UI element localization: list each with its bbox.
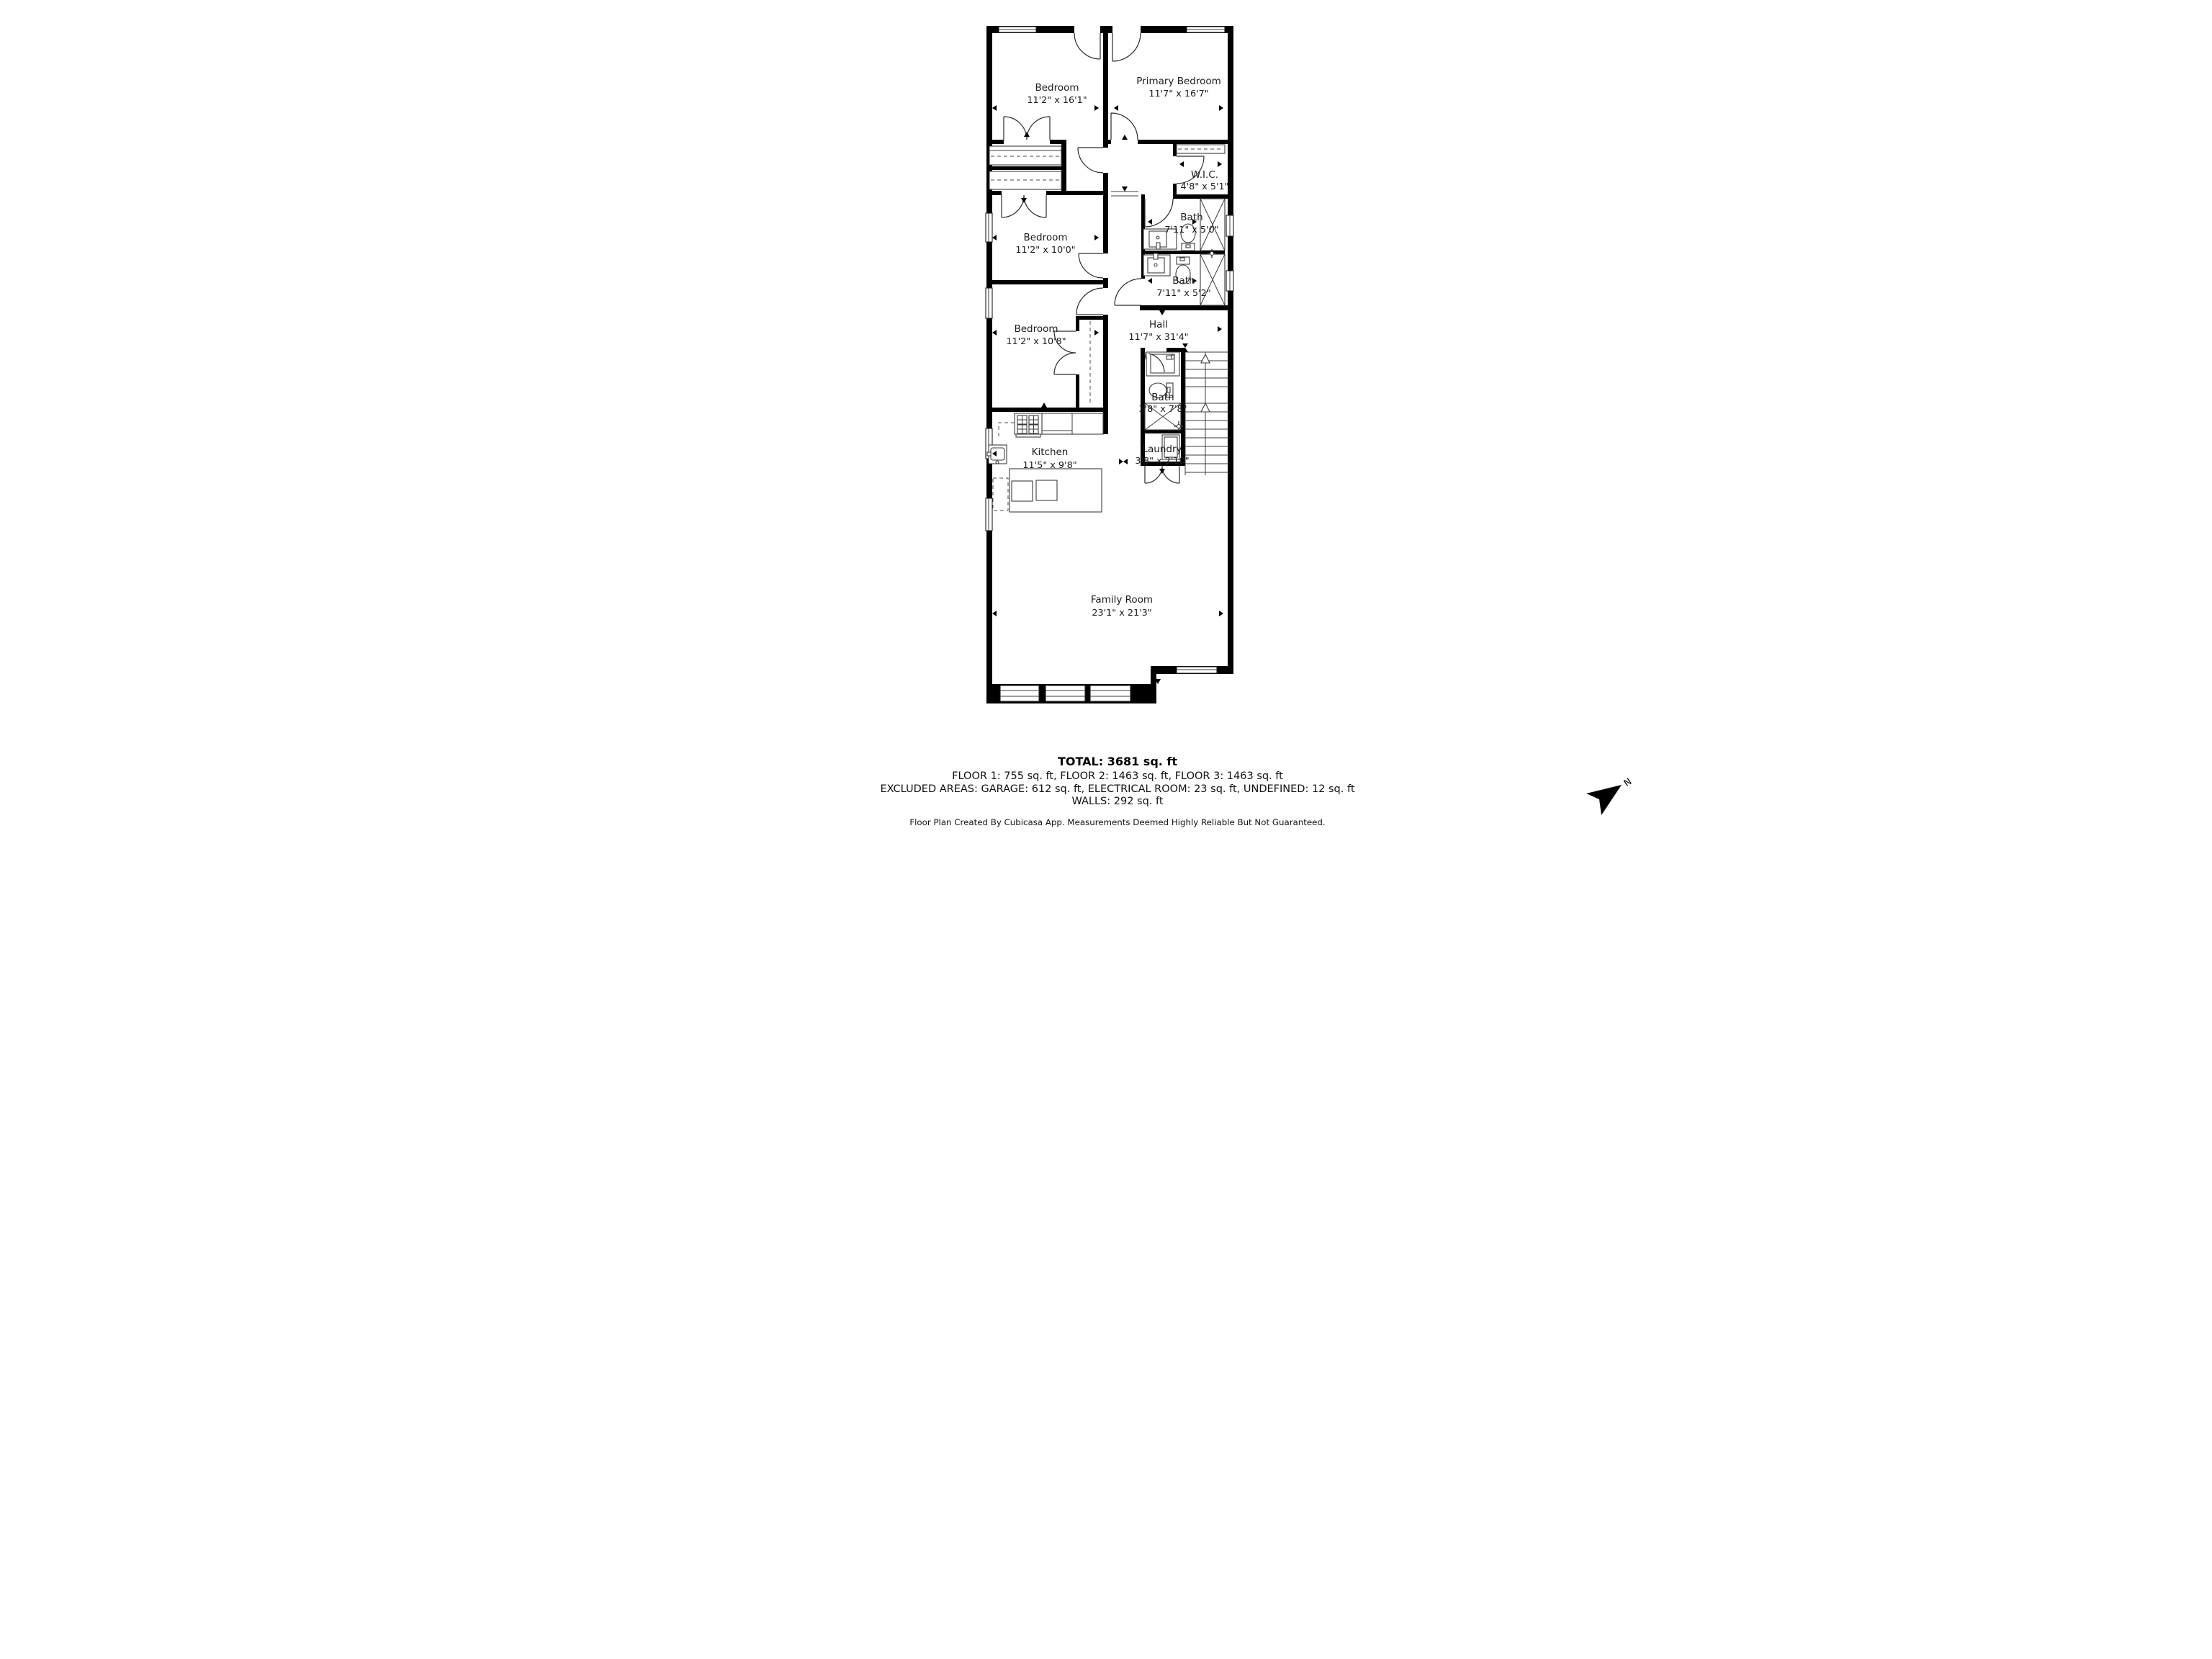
room-label: Family Room xyxy=(1091,594,1153,606)
walls-area-text: WALLS: 292 sq. ft xyxy=(1071,796,1163,807)
window xyxy=(986,498,992,531)
north-label: N xyxy=(1622,776,1635,789)
room-label: Primary Bedroom xyxy=(1136,76,1221,87)
room-dimensions: 3'8" x 2'10" xyxy=(1135,456,1189,467)
room-dimensions: 11'2" x 10'0" xyxy=(1015,245,1075,256)
window xyxy=(1187,27,1225,32)
total-area-text: TOTAL: 3681 sq. ft xyxy=(1058,755,1177,768)
room-label: Bedroom xyxy=(1014,323,1058,335)
room-label: Kitchen xyxy=(1032,446,1069,458)
room-label: Laundry xyxy=(1142,444,1182,455)
room-bedroom-3: Bedroom 11'2" x 10'8" xyxy=(1006,323,1066,347)
window xyxy=(1226,271,1233,291)
room-dimensions: 11'2" x 16'1" xyxy=(1027,95,1087,106)
room-wic: W.I.C. 4'8" x 5'1" xyxy=(1180,169,1228,192)
window xyxy=(1226,215,1233,236)
window xyxy=(986,213,992,242)
kitchen-island xyxy=(1010,469,1102,512)
sink-icon xyxy=(987,445,1007,464)
room-kitchen: Kitchen 11'5" x 9'8" xyxy=(1022,446,1076,471)
window xyxy=(999,27,1036,32)
shower-stall-icon xyxy=(1146,352,1179,376)
sink-icon xyxy=(1143,253,1170,276)
excluded-areas-text: EXCLUDED AREAS: GARAGE: 612 sq. ft, ELEC… xyxy=(880,783,1354,795)
disclaimer-text: Floor Plan Created By Cubicasa App. Meas… xyxy=(909,817,1325,827)
stairs-up-arrow xyxy=(1201,403,1210,412)
north-arrow-icon xyxy=(1586,785,1622,815)
window xyxy=(1000,685,1039,701)
room-hall: Hall 11'7" x 31'4" xyxy=(1128,319,1188,343)
floor-areas-text: FLOOR 1: 755 sq. ft, FLOOR 2: 1463 sq. f… xyxy=(952,770,1283,782)
room-family-room: Family Room 23'1" x 21'3" xyxy=(1091,594,1153,619)
room-label: Hall xyxy=(1149,319,1168,331)
room-dimensions: 7'11" x 5'2" xyxy=(1156,288,1210,299)
summary-block: TOTAL: 3681 sq. ft FLOOR 1: 755 sq. ft, … xyxy=(880,755,1354,827)
counter xyxy=(1042,413,1103,434)
room-label: Bath xyxy=(1180,212,1202,223)
window xyxy=(1090,685,1130,701)
room-dimensions: 3'8" x 7'8" xyxy=(1138,404,1187,415)
floor-plan-page: Bedroom 11'2" x 16'1" Primary Bedroom 11… xyxy=(553,0,1659,829)
window xyxy=(986,288,992,318)
room-dimensions: 11'2" x 10'8" xyxy=(1006,336,1066,347)
room-bedroom-1: Bedroom 11'2" x 16'1" xyxy=(1027,82,1087,106)
stairs xyxy=(1185,352,1228,475)
room-primary-bedroom: Primary Bedroom 11'7" x 16'7" xyxy=(1136,76,1221,99)
room-label: Bedroom xyxy=(1035,82,1079,94)
stove-icon xyxy=(1015,413,1042,437)
room-bedroom-2: Bedroom 11'2" x 10'0" xyxy=(1015,232,1075,256)
room-dimensions: 7'11" x 5'0" xyxy=(1164,225,1218,235)
room-label: Bath xyxy=(1172,275,1195,287)
room-label: Bath xyxy=(1151,392,1174,403)
room-dimensions: 11'5" x 9'8" xyxy=(1022,460,1076,471)
floor-plan-canvas: Bedroom 11'2" x 16'1" Primary Bedroom 11… xyxy=(553,0,1659,829)
window xyxy=(1046,685,1085,701)
room-dimensions: 11'7" x 16'7" xyxy=(1148,89,1208,99)
window xyxy=(1177,667,1217,673)
room-dimensions: 23'1" x 21'3" xyxy=(1092,608,1151,619)
room-label: W.I.C. xyxy=(1191,169,1218,181)
room-dimensions: 11'7" x 31'4" xyxy=(1128,332,1188,343)
room-label: Bedroom xyxy=(1023,232,1067,243)
compass: N xyxy=(1586,776,1634,815)
stairs-up-arrow xyxy=(1201,354,1210,363)
room-dimensions: 4'8" x 5'1" xyxy=(1180,181,1228,192)
